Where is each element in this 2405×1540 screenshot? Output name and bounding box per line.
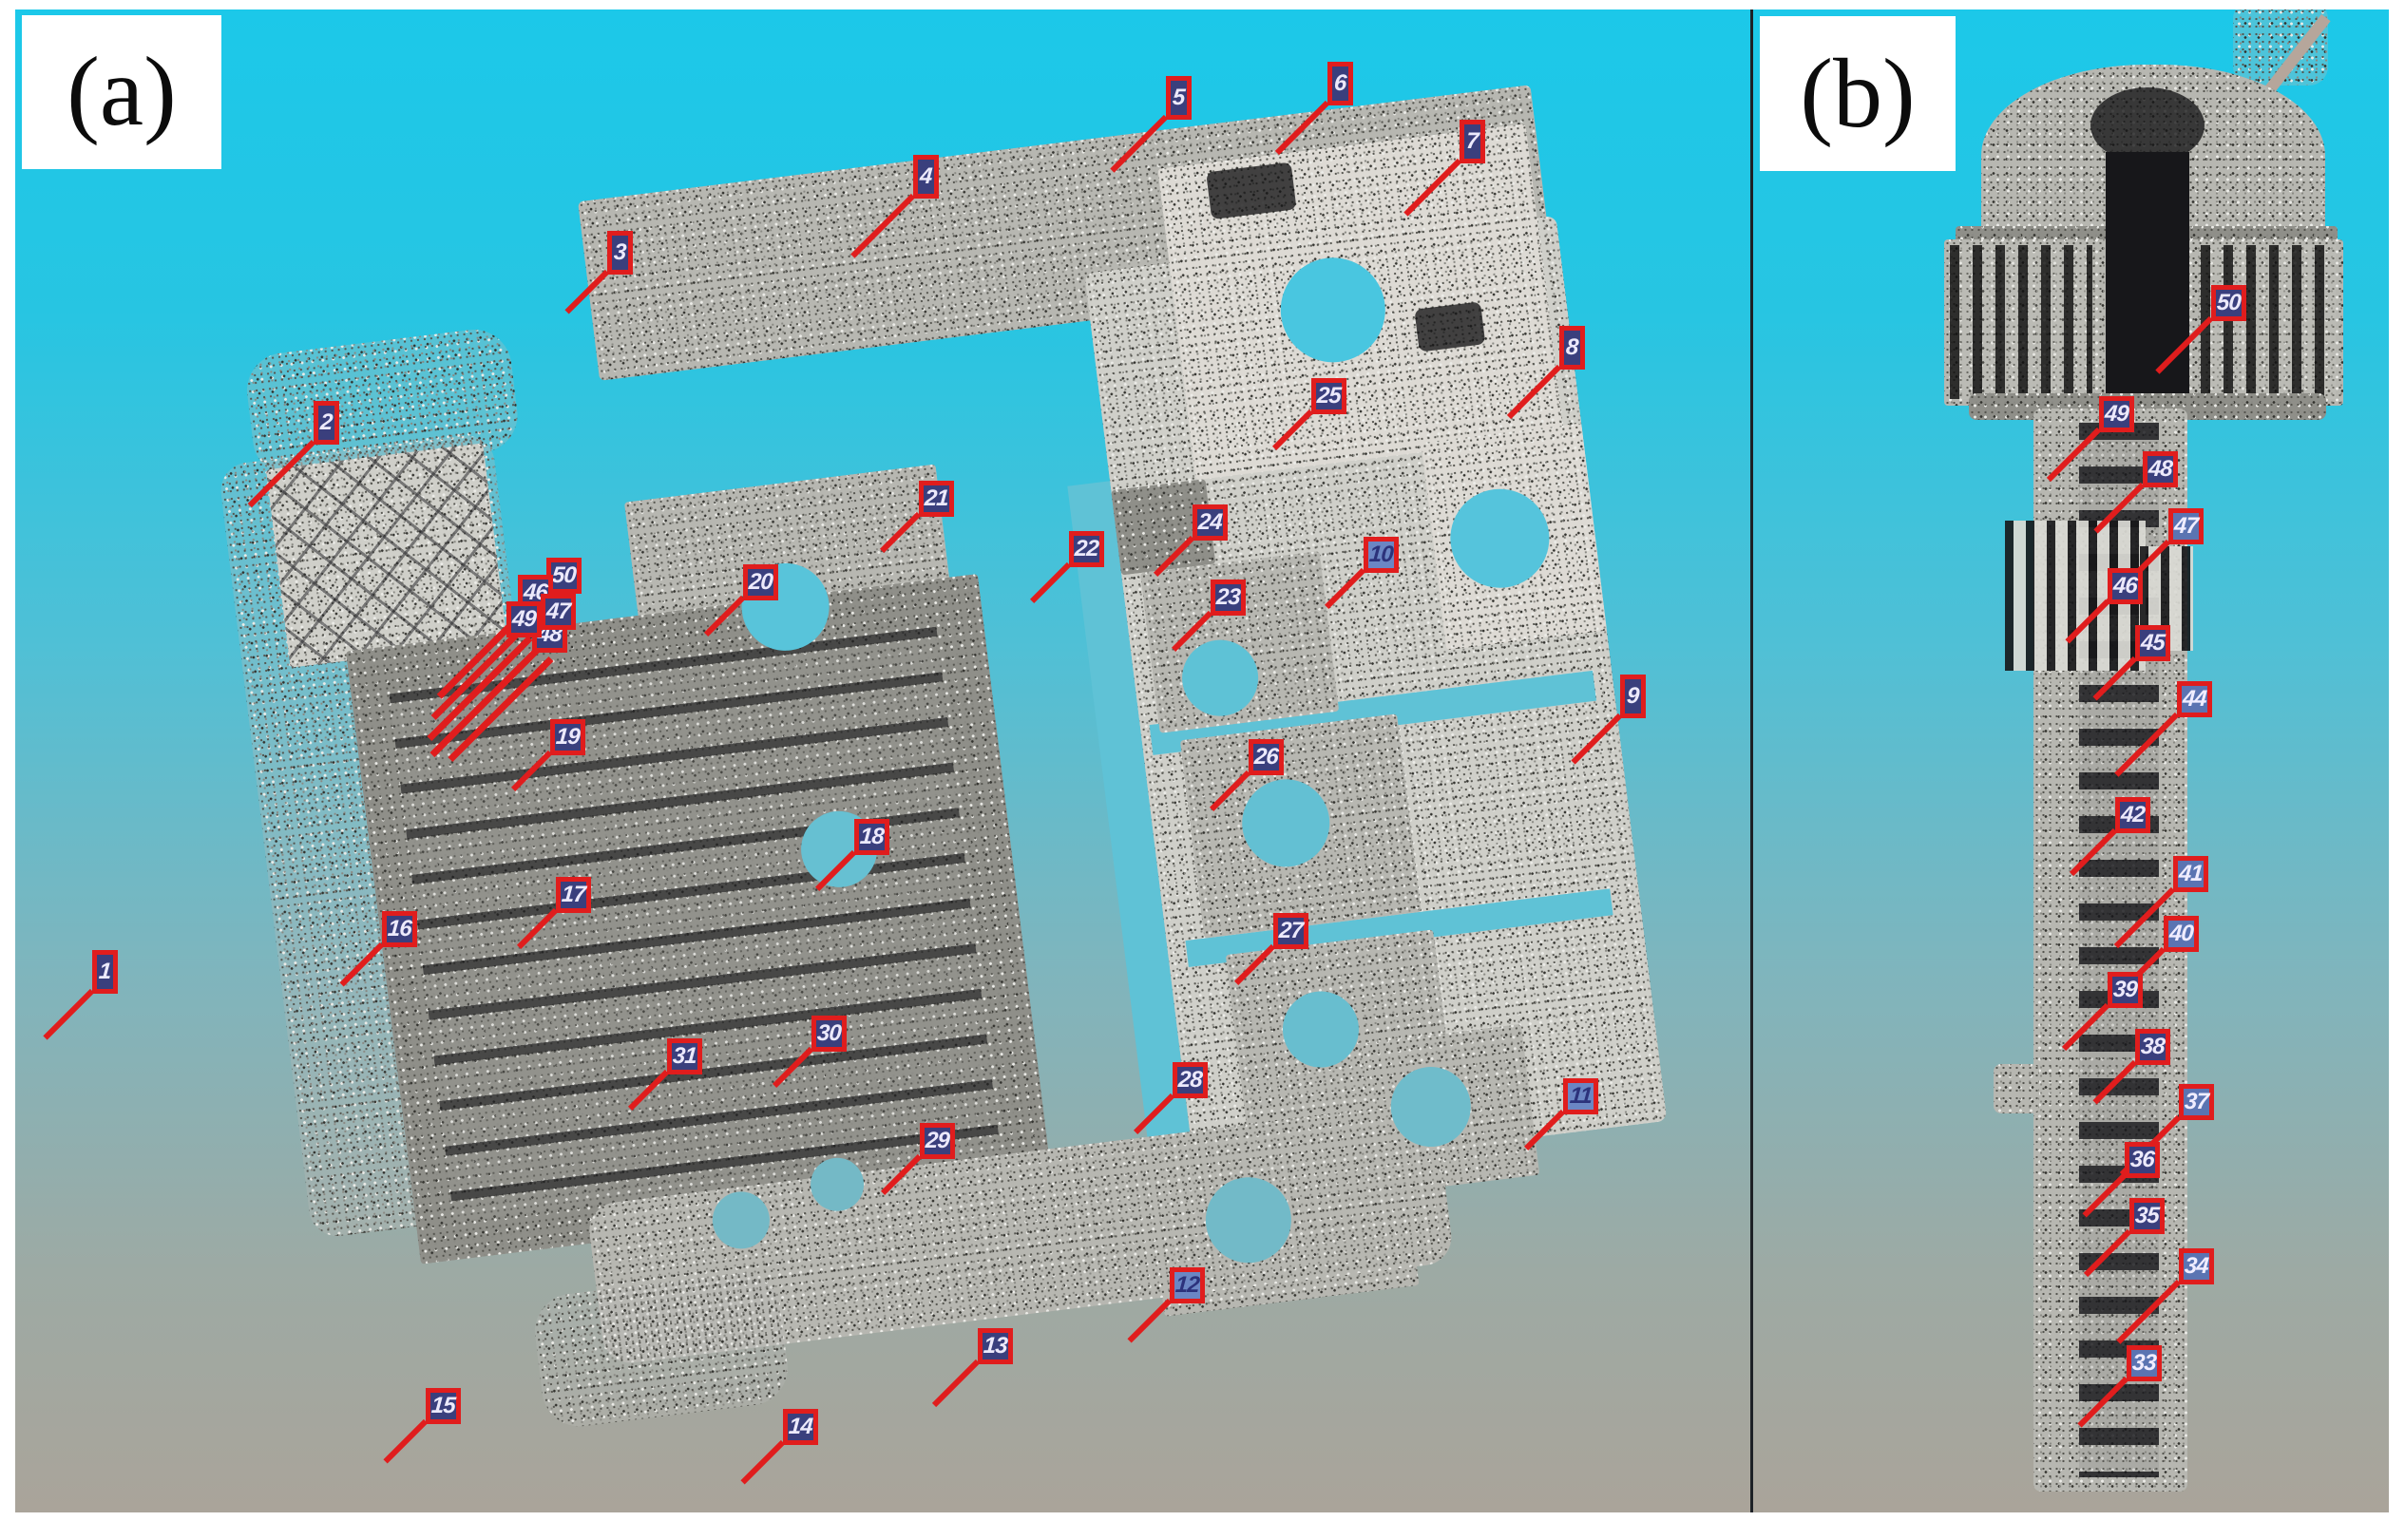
marker-number: 42 <box>2120 804 2145 827</box>
panel-a-label: (a) <box>22 15 221 169</box>
scan-marker-35[interactable]: 35 <box>2129 1198 2165 1234</box>
scan-marker-5[interactable]: 5 <box>1166 76 1192 120</box>
marker-number: 37 <box>2184 1091 2208 1113</box>
scan-marker-30[interactable]: 30 <box>811 1016 847 1052</box>
panel-b-label: (b) <box>1760 16 1956 171</box>
marker-number: 25 <box>1316 385 1341 408</box>
scan-marker-1[interactable]: 1 <box>92 950 118 994</box>
marker-number: 5 <box>1172 86 1185 109</box>
marker-number: 47 <box>2173 515 2198 538</box>
scan-marker-8[interactable]: 8 <box>1559 326 1585 370</box>
scan-marker-39[interactable]: 39 <box>2108 972 2143 1008</box>
scan-marker-38[interactable]: 38 <box>2135 1029 2170 1065</box>
marker-number: 16 <box>387 918 411 941</box>
scan-marker-7[interactable]: 7 <box>1460 120 1485 163</box>
scan-marker-20[interactable]: 20 <box>743 564 778 600</box>
marker-number: 2 <box>319 411 333 434</box>
marker-number: 29 <box>925 1130 949 1152</box>
scan-marker-9[interactable]: 9 <box>1620 675 1646 718</box>
marker-number: 47 <box>545 600 570 623</box>
figure-margin-bottom <box>0 1512 2405 1540</box>
scan-marker-12[interactable]: 12 <box>1170 1267 1205 1303</box>
scan-marker-2[interactable]: 2 <box>314 401 339 445</box>
marker-number: 40 <box>2168 922 2193 945</box>
point-cloud-shape <box>1414 301 1485 352</box>
scan-marker-49[interactable]: 49 <box>2099 396 2134 432</box>
panel-divider-line <box>1750 10 1753 1512</box>
scan-marker-3[interactable]: 3 <box>607 231 633 275</box>
marker-number: 50 <box>2216 292 2241 314</box>
scan-marker-33[interactable]: 33 <box>2127 1345 2162 1381</box>
figure-margin-right <box>2389 0 2405 1540</box>
scan-marker-11[interactable]: 11 <box>1563 1078 1598 1114</box>
scan-marker-45[interactable]: 45 <box>2135 625 2170 661</box>
scan-marker-23[interactable]: 23 <box>1211 580 1246 616</box>
marker-number: 17 <box>561 884 585 906</box>
scan-marker-40[interactable]: 40 <box>2164 916 2199 952</box>
marker-number: 13 <box>983 1335 1007 1358</box>
scan-marker-27[interactable]: 27 <box>1273 913 1308 949</box>
point-cloud-shape <box>1950 245 2092 399</box>
scan-marker-47[interactable]: 47 <box>2168 508 2204 544</box>
scan-marker-37[interactable]: 37 <box>2179 1084 2214 1120</box>
scan-marker-46[interactable]: 46 <box>2108 568 2143 604</box>
marker-number: 10 <box>1368 543 1393 566</box>
scan-marker-17[interactable]: 17 <box>556 877 591 913</box>
marker-number: 18 <box>859 826 884 848</box>
scan-marker-19[interactable]: 19 <box>550 719 585 755</box>
scan-marker-16[interactable]: 16 <box>382 911 417 947</box>
marker-number: 11 <box>1569 1085 1593 1108</box>
marker-number: 50 <box>551 564 576 587</box>
marker-number: 46 <box>2112 575 2137 598</box>
scan-marker-22[interactable]: 22 <box>1069 531 1104 567</box>
scan-marker-24[interactable]: 24 <box>1193 504 1228 541</box>
scan-marker-49[interactable]: 49 <box>506 601 542 637</box>
scan-marker-21[interactable]: 21 <box>919 481 954 517</box>
marker-number: 34 <box>2184 1255 2208 1278</box>
marker-number: 45 <box>2140 632 2165 655</box>
marker-number: 38 <box>2140 1036 2165 1058</box>
figure-canvas: 4850464749123456789101112131415161718192… <box>0 0 2405 1540</box>
scan-marker-10[interactable]: 10 <box>1364 537 1399 573</box>
marker-number: 49 <box>2104 403 2128 426</box>
marker-number: 26 <box>1253 746 1278 769</box>
point-cloud-shape <box>2201 245 2336 399</box>
marker-number: 12 <box>1174 1274 1199 1297</box>
marker-number: 3 <box>613 241 626 264</box>
marker-number: 28 <box>1177 1069 1202 1092</box>
scan-marker-15[interactable]: 15 <box>426 1388 461 1424</box>
marker-number: 15 <box>430 1395 455 1417</box>
scan-marker-4[interactable]: 4 <box>913 155 939 199</box>
marker-number: 4 <box>919 165 932 188</box>
point-cloud-shape <box>390 627 1002 1223</box>
marker-number: 39 <box>2112 979 2137 1001</box>
marker-number: 36 <box>2129 1149 2154 1171</box>
marker-number: 27 <box>1278 920 1303 942</box>
marker-number: 35 <box>2134 1205 2159 1227</box>
marker-number: 20 <box>748 571 773 594</box>
scan-marker-6[interactable]: 6 <box>1327 62 1353 105</box>
marker-number: 22 <box>1074 538 1098 561</box>
marker-number: 24 <box>1197 511 1222 534</box>
marker-number: 9 <box>1626 685 1639 708</box>
marker-number: 31 <box>672 1045 697 1068</box>
scan-marker-26[interactable]: 26 <box>1249 739 1284 775</box>
point-cloud-shape <box>2106 152 2189 401</box>
marker-number: 8 <box>1565 336 1578 359</box>
point-cloud-shape <box>266 443 507 667</box>
scan-marker-34[interactable]: 34 <box>2179 1248 2214 1284</box>
scan-marker-48[interactable]: 48 <box>2143 451 2178 487</box>
point-cloud-shape <box>1994 1064 2039 1113</box>
scan-marker-42[interactable]: 42 <box>2115 797 2150 833</box>
marker-number: 48 <box>2147 458 2172 481</box>
marker-number: 14 <box>788 1416 812 1438</box>
marker-number: 23 <box>1215 586 1240 609</box>
marker-number: 41 <box>2178 863 2203 885</box>
marker-number: 44 <box>2182 688 2206 711</box>
mosque-plan-point-cloud <box>169 52 1714 1440</box>
marker-number: 33 <box>2131 1352 2156 1375</box>
scan-marker-44[interactable]: 44 <box>2177 681 2212 717</box>
scan-marker-31[interactable]: 31 <box>667 1038 702 1074</box>
scan-marker-14[interactable]: 14 <box>783 1409 818 1445</box>
marker-number: 21 <box>924 487 948 510</box>
marker-number: 30 <box>816 1022 841 1045</box>
marker-number: 7 <box>1465 130 1479 153</box>
marker-number: 1 <box>98 960 111 983</box>
marker-number: 6 <box>1333 72 1346 95</box>
marker-number: 19 <box>555 726 580 749</box>
scan-marker-50[interactable]: 50 <box>2211 285 2246 321</box>
scan-marker-41[interactable]: 41 <box>2173 856 2208 892</box>
scan-marker-18[interactable]: 18 <box>854 819 889 855</box>
scan-marker-47[interactable]: 47 <box>541 594 576 630</box>
figure-margin-top <box>0 0 2405 10</box>
marker-number: 49 <box>511 608 536 631</box>
scan-marker-29[interactable]: 29 <box>920 1123 955 1159</box>
scan-marker-13[interactable]: 13 <box>978 1328 1013 1364</box>
scan-marker-36[interactable]: 36 <box>2125 1142 2160 1178</box>
scan-marker-28[interactable]: 28 <box>1173 1062 1208 1098</box>
figure-margin-left <box>0 0 15 1540</box>
scan-marker-25[interactable]: 25 <box>1311 378 1346 414</box>
